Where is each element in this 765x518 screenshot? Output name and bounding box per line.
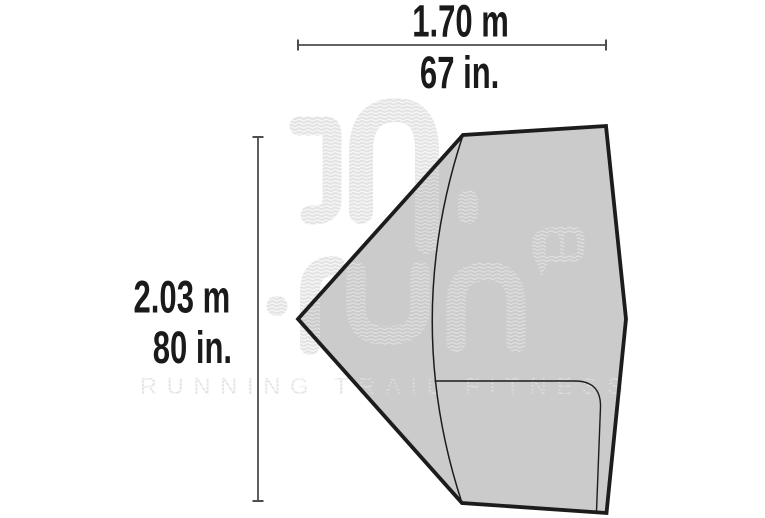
svg-text:80 in.: 80 in. — [153, 323, 232, 373]
svg-text:67 in.: 67 in. — [420, 48, 499, 98]
svg-text:2.03 m: 2.03 m — [134, 273, 231, 323]
svg-text:1.70 m: 1.70 m — [412, 0, 509, 47]
